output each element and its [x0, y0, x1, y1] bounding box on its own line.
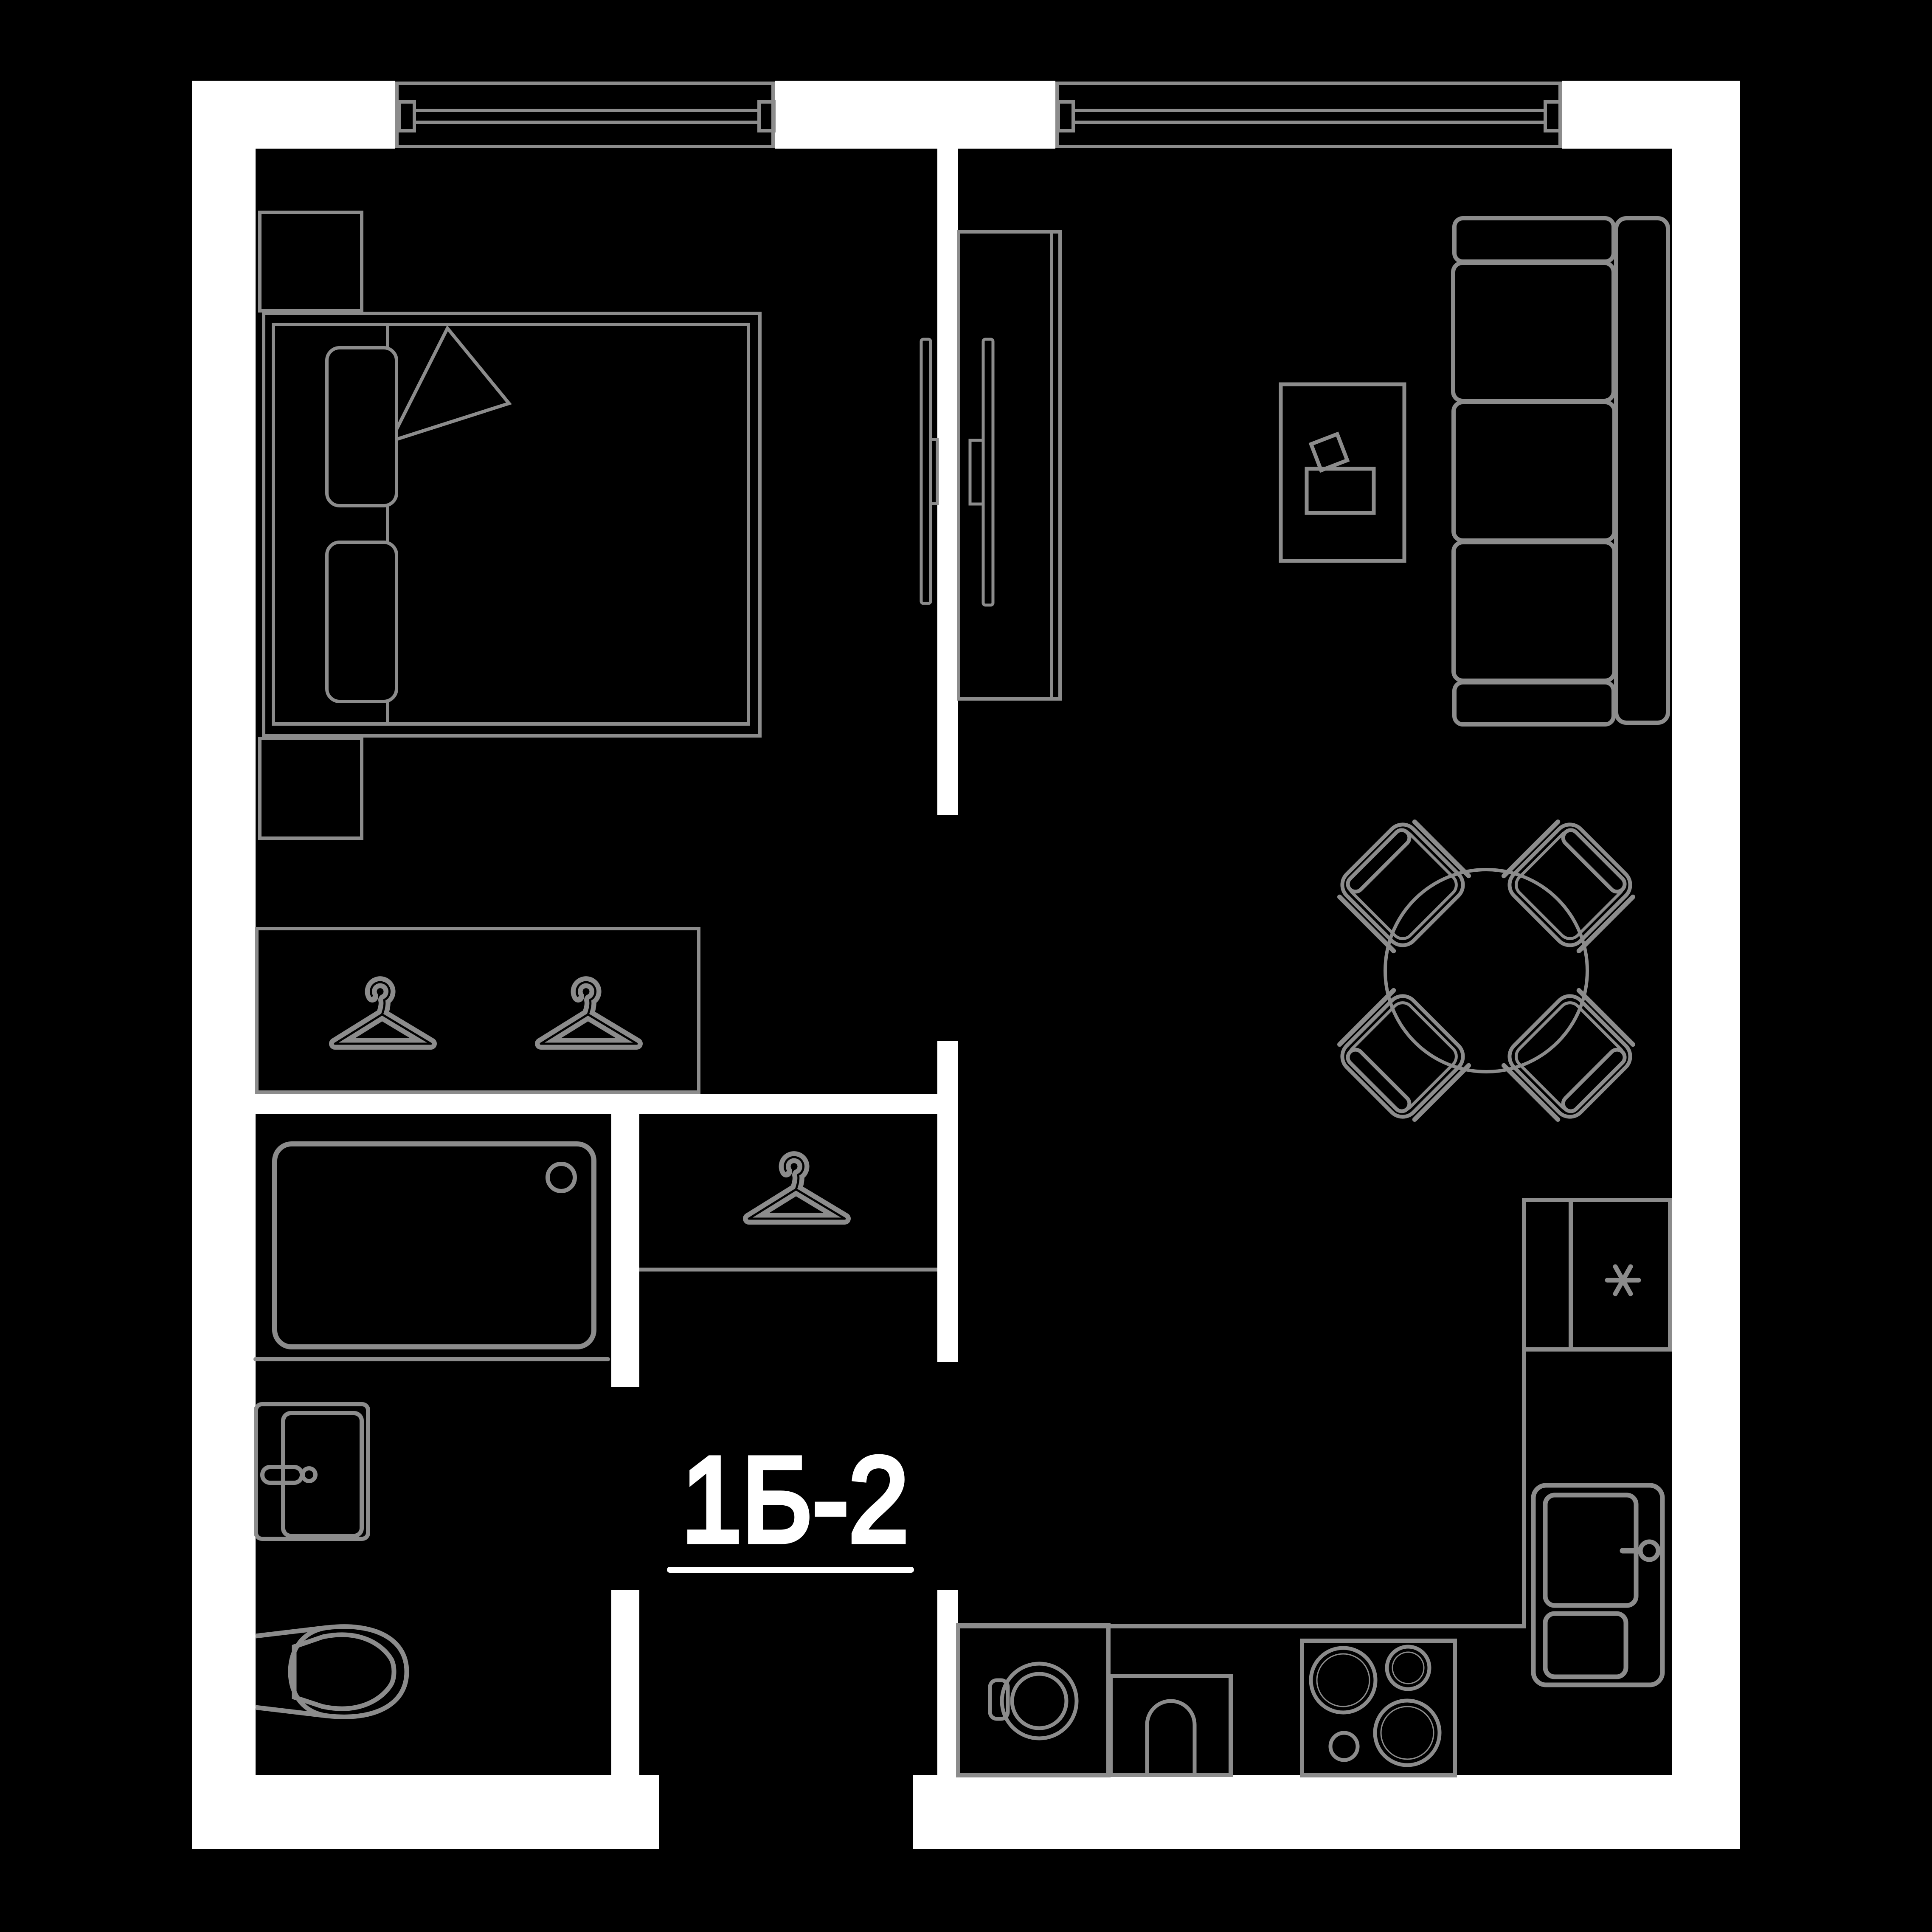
svg-text:1Б-2: 1Б-2: [682, 1432, 909, 1567]
